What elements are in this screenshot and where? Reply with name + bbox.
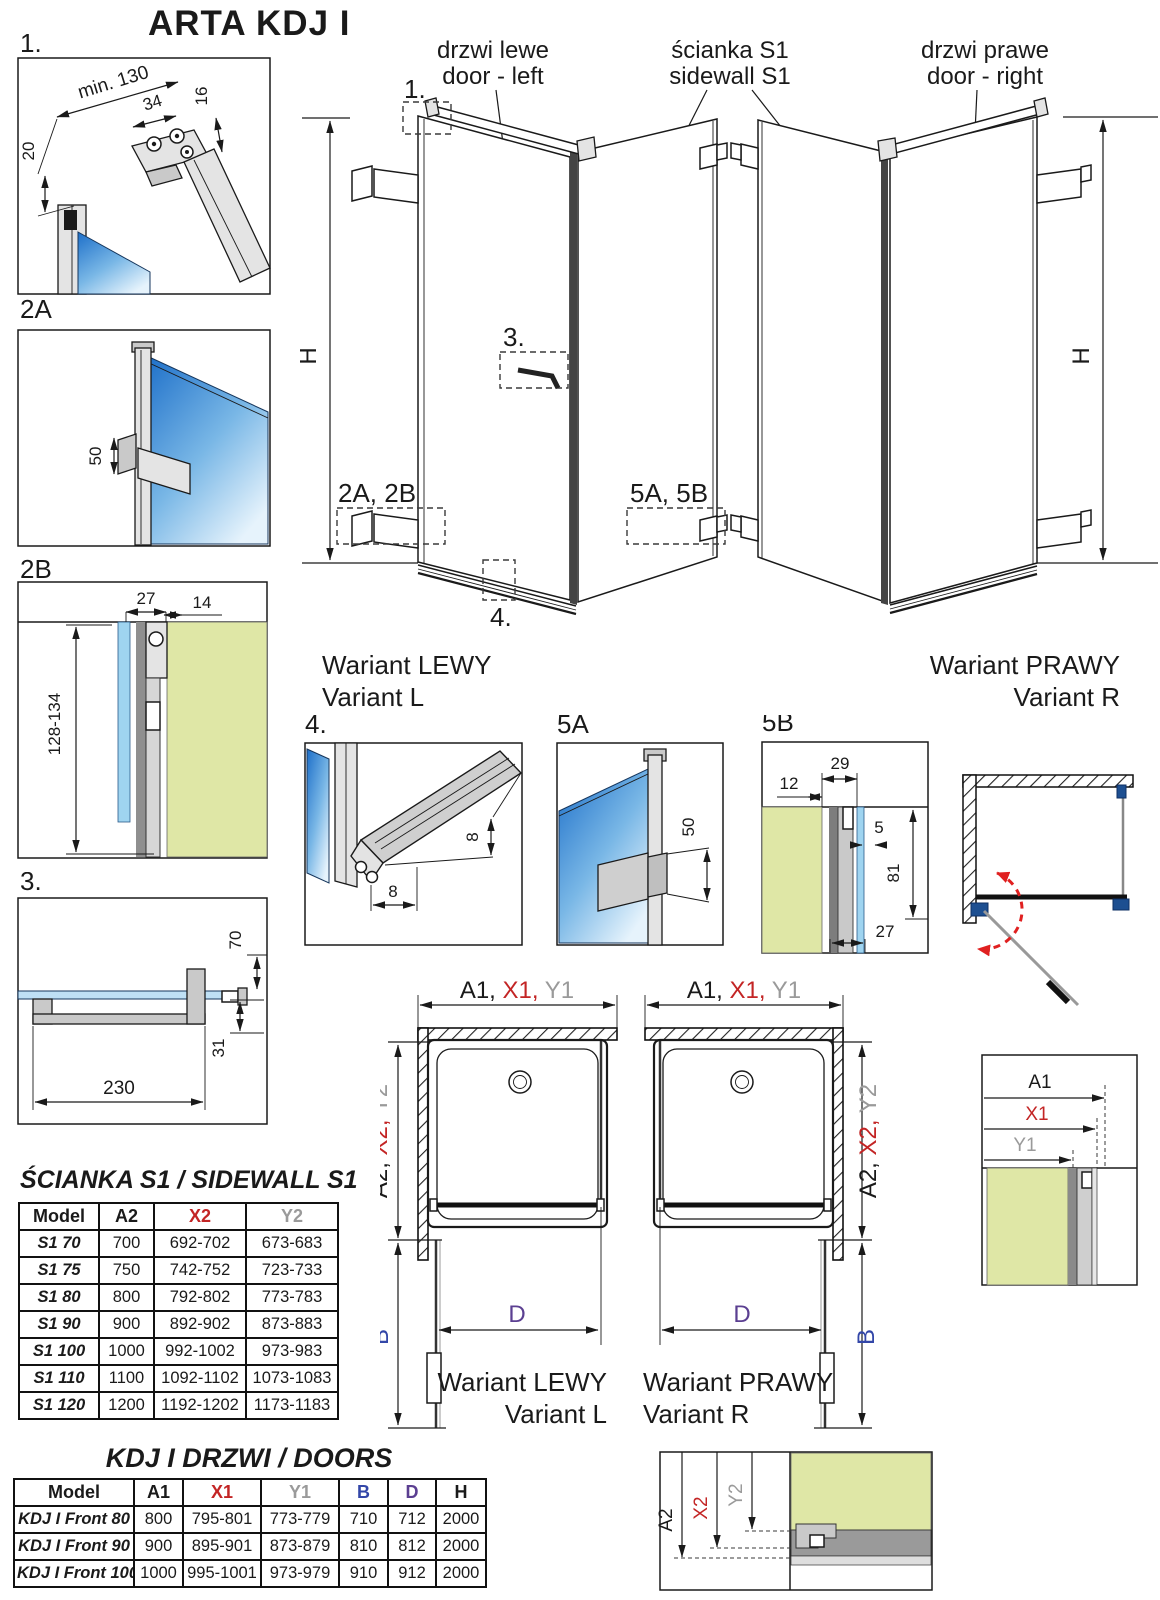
dim-x1: X1 <box>1025 1104 1048 1125</box>
detail-1-label: 1. <box>20 30 42 58</box>
dim-a2x2y2: A2, X2, Y2 <box>380 1084 393 1198</box>
datasheet-page: ARTA KDJ I 1. min. 130 34 16 <box>0 0 1160 1600</box>
plan-variant-left-pl: Wariant LEWY <box>437 1367 607 1397</box>
table-row: S1 80800792-802773-783 <box>19 1284 338 1311</box>
plan-variant-left-en: Variant L <box>505 1399 607 1429</box>
value-cell: 1192-1202 <box>154 1392 246 1419</box>
profile-section <box>1068 1168 1097 1285</box>
door-left-label-en: door - left <box>442 63 544 90</box>
detail-2b-drawing: 2B 27 14 128-134 <box>14 558 274 864</box>
plan-right: A1, X1, Y1 A2, X2, Y2 B D Wariant PRAWY <box>643 977 882 1429</box>
value-cell: 810 <box>339 1533 388 1560</box>
column-header-y1: Y1 <box>261 1479 339 1506</box>
door-open-line <box>984 911 1078 1005</box>
door-left-label-pl: drzwi lewe <box>437 38 549 64</box>
value-cell: 795-801 <box>183 1506 261 1533</box>
column-header-a1: A1 <box>134 1479 183 1506</box>
dim-27: 27 <box>876 922 895 941</box>
wall-bracket-icon <box>1117 785 1126 798</box>
dim-34: 34 <box>141 91 165 115</box>
model-cell: KDJ I Front 100 <box>14 1560 134 1587</box>
value-cell: 892-902 <box>154 1311 246 1338</box>
profile-section <box>136 622 167 857</box>
column-header-b: B <box>339 1479 388 1506</box>
doors-table: ModelA1X1Y1BDHKDJ I Front 80800795-80177… <box>13 1478 487 1588</box>
door-right-label-pl: drzwi prawe <box>921 38 1049 64</box>
dim-128-134: 128-134 <box>45 693 64 755</box>
plan-left: A1, X1, Y1 A2, X2, Y2 B D Wariant LEWY <box>380 977 617 1429</box>
callout-4: 4. <box>490 602 512 632</box>
dim-27: 27 <box>137 589 156 608</box>
value-cell: 912 <box>388 1560 436 1587</box>
value-cell: 973-979 <box>261 1560 339 1587</box>
table-row: S1 11011001092-11021073-1083 <box>19 1365 338 1392</box>
model-cell: KDJ I Front 80 <box>14 1506 134 1533</box>
model-cell: S1 120 <box>19 1392 99 1419</box>
corner-section-a1: A1 X1 Y1 <box>960 1030 1160 1300</box>
column-header-model: Model <box>14 1479 134 1506</box>
wall-hatched-top <box>963 775 1133 787</box>
value-cell: 1000 <box>99 1338 154 1365</box>
glass-pane <box>147 356 268 544</box>
model-cell: S1 70 <box>19 1230 99 1257</box>
column-header-h: H <box>436 1479 486 1506</box>
main-isometric-views: drzwi lewe door - left ścianka S1 sidewa… <box>300 38 1160 712</box>
doors-table-title: KDJ I DRZWI / DOORS <box>13 1443 485 1474</box>
wall-section <box>987 1168 1068 1285</box>
dim-29: 29 <box>831 754 850 773</box>
detail-5b-drawing: 5B 29 12 5 81 27 <box>762 715 928 953</box>
value-cell: 873-879 <box>261 1533 339 1560</box>
wall-hatched-left <box>963 775 976 923</box>
dim-a2x2y2: A2, X2, Y2 <box>855 1084 882 1198</box>
detail-5b-label: 5B <box>762 715 794 737</box>
wall-section <box>167 622 267 857</box>
value-cell: 750 <box>99 1257 154 1284</box>
column-header-model: Model <box>19 1203 99 1230</box>
dim-b: B <box>853 1329 880 1345</box>
value-cell: 792-802 <box>154 1284 246 1311</box>
dim-y1: Y1 <box>1013 1135 1036 1156</box>
sidewall-label-en: sidewall S1 <box>669 63 790 90</box>
dim-b: B <box>380 1329 394 1345</box>
dim-81: 81 <box>884 864 903 883</box>
dim-70: 70 <box>226 931 245 950</box>
column-header-x2: X2 <box>154 1203 246 1230</box>
dim-a1: A1 <box>1028 1072 1051 1093</box>
corner-section-a2: A2 X2 Y2 <box>650 1440 945 1600</box>
door-right-label-en: door - right <box>927 63 1043 90</box>
dim-16: 16 <box>192 87 211 106</box>
table-row: S1 1001000992-1002973-983 <box>19 1338 338 1365</box>
variant-left-label-en: Variant L <box>322 682 424 712</box>
variant-left-drawing: H 1. 3. 2A, 2B <box>300 74 727 712</box>
wall-section <box>791 1453 931 1530</box>
variant-right-label-en: Variant R <box>1014 682 1120 712</box>
dim-31: 31 <box>209 1039 228 1058</box>
variant-right-drawing: H Wariant PRAWY Variant R <box>731 98 1158 712</box>
h-dimension-right: H <box>1068 347 1095 364</box>
value-cell: 673-683 <box>246 1230 338 1257</box>
detail-3-drawing: 3. 70 31 230 <box>14 872 274 1138</box>
table-row: S1 12012001192-12021173-1183 <box>19 1392 338 1419</box>
callout-2ab: 2A, 2B <box>338 478 416 508</box>
model-cell: S1 100 <box>19 1338 99 1365</box>
glass-profile <box>58 205 150 294</box>
profile-section <box>791 1524 931 1565</box>
value-cell: 800 <box>99 1284 154 1311</box>
value-cell: 773-783 <box>246 1284 338 1311</box>
column-header-d: D <box>388 1479 436 1506</box>
value-cell: 995-1001 <box>183 1560 261 1587</box>
value-cell: 1173-1183 <box>246 1392 338 1419</box>
model-cell: KDJ I Front 90 <box>14 1533 134 1560</box>
detail-2a-drawing: 2A 50 <box>14 298 274 552</box>
detail-2b-label: 2B <box>20 558 52 584</box>
column-header-a2: A2 <box>99 1203 154 1230</box>
dim-5: 5 <box>874 818 883 837</box>
value-cell: 773-779 <box>261 1506 339 1533</box>
value-cell: 992-1002 <box>154 1338 246 1365</box>
value-cell: 742-752 <box>154 1257 246 1284</box>
glass-section <box>118 622 130 822</box>
column-header-y2: Y2 <box>246 1203 338 1230</box>
dim-14: 14 <box>193 593 212 612</box>
glass-section <box>18 991 247 999</box>
value-cell: 692-702 <box>154 1230 246 1257</box>
value-cell: 1200 <box>99 1392 154 1419</box>
h-dimension-left: H <box>300 347 322 364</box>
plan-views: A1, X1, Y1 A2, X2, Y2 B D Wariant LEWY <box>380 955 960 1435</box>
value-cell: 900 <box>99 1311 154 1338</box>
table-row: S1 75750742-752723-733 <box>19 1257 338 1284</box>
table-row: KDJ I Front 80800795-801773-779710712200… <box>14 1506 486 1533</box>
sidewall-table: ModelA2X2Y2S1 70700692-702673-683S1 7575… <box>18 1202 339 1420</box>
value-cell: 895-901 <box>183 1533 261 1560</box>
model-cell: S1 75 <box>19 1257 99 1284</box>
dim-a1x1y1: A1, X1, Y1 <box>460 977 574 1004</box>
plan-variant-right-en: Variant R <box>643 1399 749 1429</box>
value-cell: 700 <box>99 1230 154 1257</box>
value-cell: 2000 <box>436 1560 486 1587</box>
detail-2a-label: 2A <box>20 298 52 324</box>
column-header-x1: X1 <box>183 1479 261 1506</box>
value-cell: 873-883 <box>246 1311 338 1338</box>
detail-4-label: 4. <box>305 715 327 739</box>
plan-variant-right-pl: Wariant PRAWY <box>643 1367 833 1397</box>
detail-5a-label: 5A <box>557 715 589 739</box>
dim-230: 230 <box>103 1078 135 1099</box>
table-row: KDJ I Front 90900895-901873-879810812200… <box>14 1533 486 1560</box>
model-cell: S1 110 <box>19 1365 99 1392</box>
value-cell: 800 <box>134 1506 183 1533</box>
detail-3-label: 3. <box>20 872 42 896</box>
detail-1-drawing: 1. min. 130 34 16 20 <box>14 30 274 298</box>
value-cell: 723-733 <box>246 1257 338 1284</box>
callout-3: 3. <box>503 322 525 352</box>
dim-d: D <box>508 1301 525 1328</box>
table-row: KDJ I Front 1001000995-1001973-979910912… <box>14 1560 486 1587</box>
dim-50: 50 <box>86 447 105 466</box>
dim-20: 20 <box>19 142 38 161</box>
model-cell: S1 80 <box>19 1284 99 1311</box>
variant-left-label-pl: Wariant LEWY <box>322 650 492 680</box>
dim-y2: Y2 <box>726 1483 747 1506</box>
value-cell: 1100 <box>99 1365 154 1392</box>
dim-50: 50 <box>679 818 698 837</box>
dim-12: 12 <box>780 774 799 793</box>
value-cell: 1000 <box>134 1560 183 1587</box>
callout-5ab: 5A, 5B <box>630 478 708 508</box>
value-cell: 2000 <box>436 1506 486 1533</box>
corner-fitting-icon <box>1113 899 1129 910</box>
variant-right-label-pl: Wariant PRAWY <box>930 650 1120 680</box>
dimensions: 50 <box>86 438 114 474</box>
sidewall-table-title: ŚCIANKA S1 / SIDEWALL S1 <box>20 1166 358 1195</box>
value-cell: 710 <box>339 1506 388 1533</box>
callout-1: 1. <box>404 74 426 104</box>
dim-a2: A2 <box>656 1508 677 1531</box>
dim-8-height: 8 <box>463 832 482 841</box>
value-cell: 973-983 <box>246 1338 338 1365</box>
table-row: S1 70700692-702673-683 <box>19 1230 338 1257</box>
detail-4-drawing: 4. 8 8 <box>305 715 522 945</box>
detail-5a-drawing: 5A 50 <box>557 715 723 945</box>
value-cell: 910 <box>339 1560 388 1587</box>
value-cell: 1073-1083 <box>246 1365 338 1392</box>
value-cell: 1092-1102 <box>154 1365 246 1392</box>
dim-8-width: 8 <box>388 882 397 901</box>
model-cell: S1 90 <box>19 1311 99 1338</box>
value-cell: 812 <box>388 1533 436 1560</box>
dim-d: D <box>733 1301 750 1328</box>
table-row: S1 90900892-902873-883 <box>19 1311 338 1338</box>
value-cell: 2000 <box>436 1533 486 1560</box>
sidewall-label-pl: ścianka S1 <box>671 38 788 64</box>
door-swing-top-view <box>963 775 1133 1005</box>
support-bar <box>132 129 270 282</box>
value-cell: 900 <box>134 1533 183 1560</box>
dim-a1x1y1: A1, X1, Y1 <box>687 977 801 1004</box>
value-cell: 712 <box>388 1506 436 1533</box>
dim-x2: X2 <box>691 1496 712 1519</box>
